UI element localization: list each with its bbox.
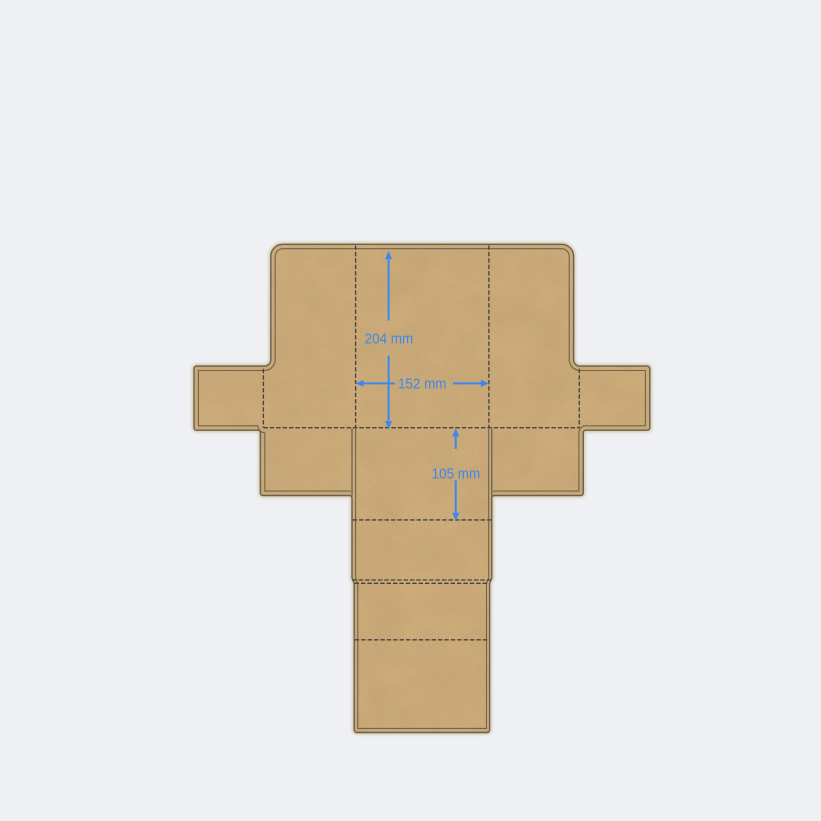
svg-text:105 mm: 105 mm [432,465,481,482]
svg-text:204 mm: 204 mm [365,331,414,348]
svg-text:152 mm: 152 mm [398,376,447,393]
